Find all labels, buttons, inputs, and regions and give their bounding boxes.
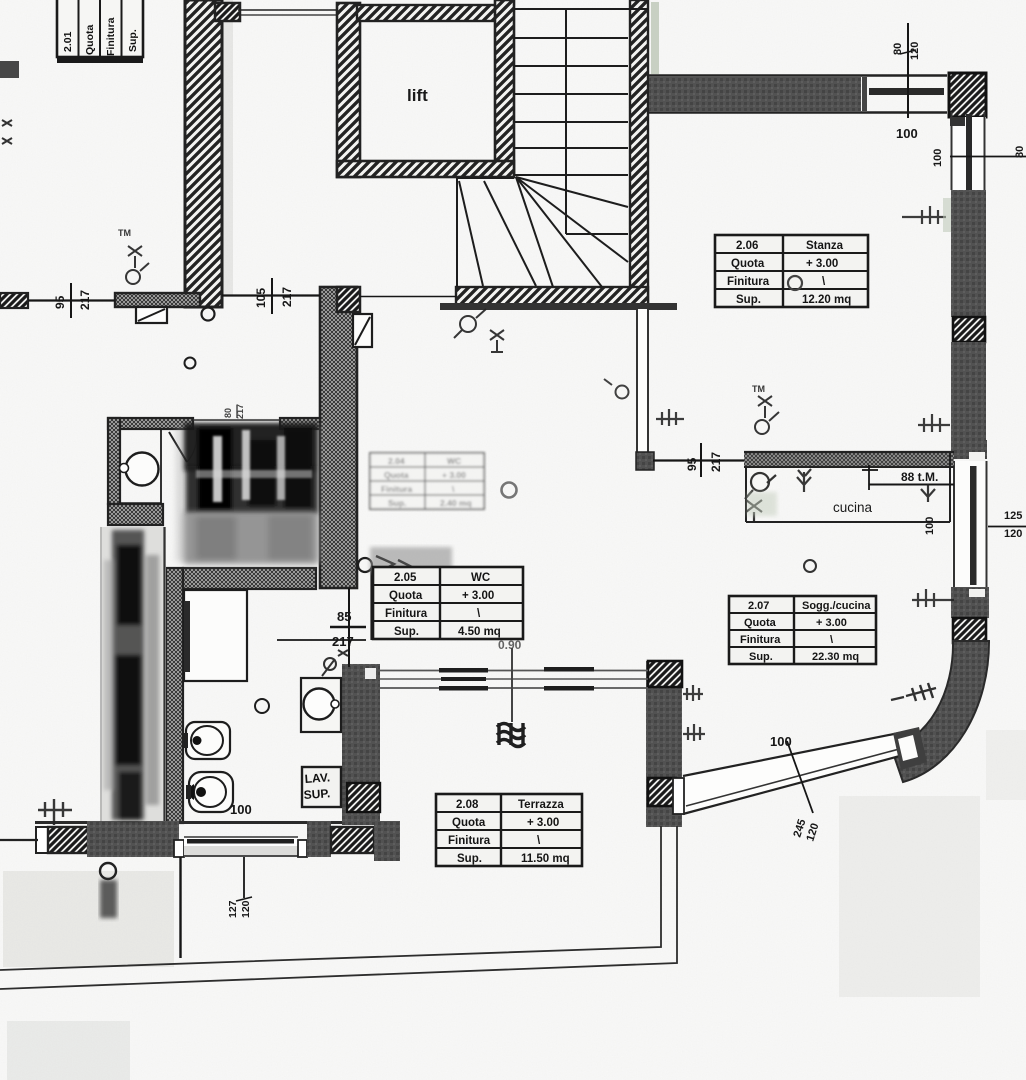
svg-text:125: 125 [1004,510,1022,522]
svg-text:Sogg./cucina: Sogg./cucina [802,600,871,612]
svg-text:100: 100 [230,802,252,817]
svg-text:\: \ [830,634,833,646]
svg-text:120: 120 [1004,528,1022,540]
svg-text:217: 217 [709,452,723,472]
svg-text:+ 3.00: + 3.00 [816,617,847,629]
svg-text:217: 217 [280,287,294,307]
svg-text:Sup.: Sup. [736,294,761,306]
svg-text:217: 217 [332,634,354,649]
svg-text:Sup.: Sup. [127,29,139,52]
svg-text:Terrazza: Terrazza [518,799,564,811]
svg-text:100: 100 [896,126,918,141]
svg-text:Quota: Quota [384,470,409,480]
svg-text:2.05: 2.05 [394,572,417,584]
svg-text:22.30 mq: 22.30 mq [812,651,859,663]
svg-text:LAV.: LAV. [304,770,330,786]
svg-text:100: 100 [924,517,936,535]
svg-text:Sup.: Sup. [749,651,773,663]
svg-text:Finitura: Finitura [740,634,781,646]
svg-text:WC: WC [471,572,490,584]
svg-text:cucina: cucina [833,500,873,515]
svg-text:217: 217 [78,290,92,310]
svg-text:Sup.: Sup. [388,498,406,508]
svg-text:+ 3.00: + 3.00 [527,817,559,829]
svg-text:SUP.: SUP. [303,786,330,802]
svg-text:95: 95 [53,295,67,309]
svg-text:+ 3.00: + 3.00 [442,470,466,480]
svg-text:lift: lift [407,86,428,105]
svg-text:2.08: 2.08 [456,799,479,811]
svg-text:Finitura: Finitura [448,835,491,847]
svg-text:100: 100 [932,149,944,167]
svg-text:0.90: 0.90 [498,638,522,652]
svg-text:120: 120 [240,900,252,918]
svg-text:120: 120 [909,42,921,60]
svg-text:TM: TM [118,228,131,238]
svg-text:2.04: 2.04 [388,456,405,466]
svg-text:Quota: Quota [389,590,423,602]
svg-text:2.01: 2.01 [62,31,74,52]
svg-text:Sup.: Sup. [394,626,419,638]
svg-text:Quota: Quota [84,25,96,55]
svg-text:95: 95 [685,457,699,471]
svg-text:2.07: 2.07 [748,600,769,612]
svg-text:Finitura: Finitura [105,17,117,56]
svg-text:2.40 mq: 2.40 mq [440,498,472,508]
svg-text:12.20 mq: 12.20 mq [802,294,851,306]
svg-text:Quota: Quota [452,817,486,829]
svg-text:Quota: Quota [744,617,777,629]
svg-text:Finitura: Finitura [385,608,428,620]
svg-text:+ 3.00: + 3.00 [806,258,838,270]
svg-text:105: 105 [254,288,268,308]
svg-text:2.06: 2.06 [736,240,758,252]
svg-text:80: 80 [223,408,233,418]
svg-text:Finitura: Finitura [381,484,412,494]
svg-text:127: 127 [227,900,239,918]
svg-text:Stanza: Stanza [806,240,844,252]
svg-text:WC: WC [447,456,461,466]
svg-text:+ 3.00: + 3.00 [462,590,494,602]
svg-text:80: 80 [892,43,904,55]
svg-text:Sup.: Sup. [457,853,482,865]
svg-text:TM: TM [752,384,765,394]
svg-text:Finitura: Finitura [727,276,770,288]
svg-text:Quota: Quota [731,258,765,270]
svg-text:88 t.M.: 88 t.M. [901,470,938,484]
svg-text:11.50 mq: 11.50 mq [521,853,570,865]
svg-text:80: 80 [1014,146,1026,158]
svg-text:4.50 mq: 4.50 mq [458,626,501,638]
